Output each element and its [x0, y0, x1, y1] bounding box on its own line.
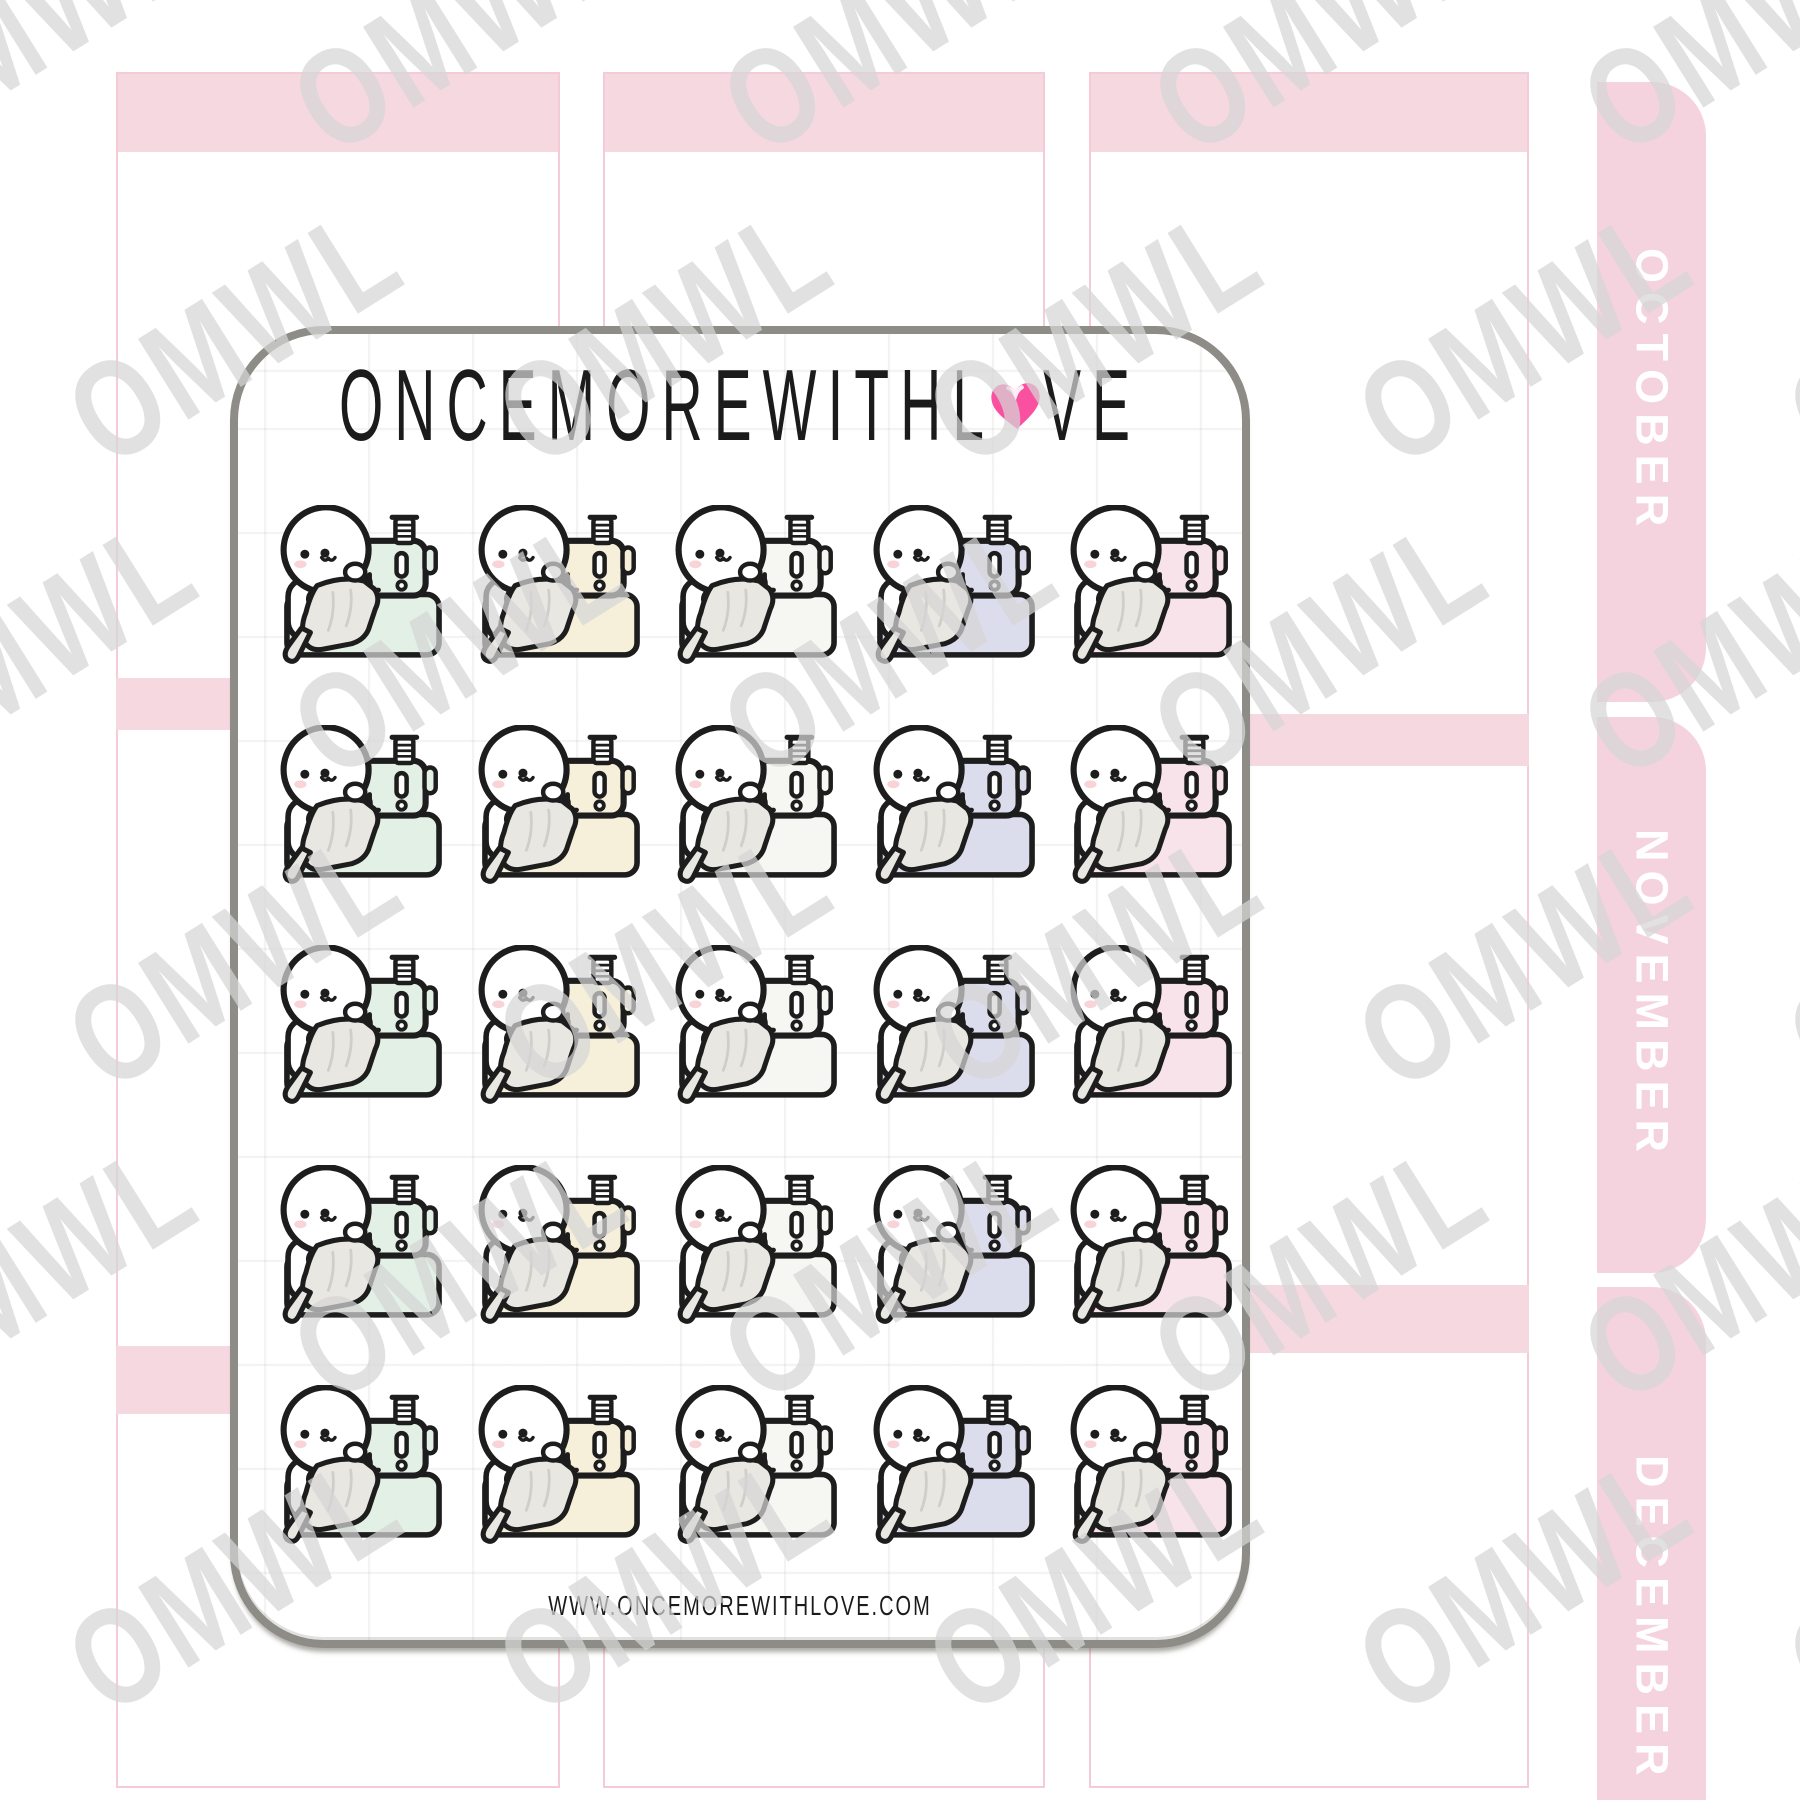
sticker-cream-sewing-machine [476, 945, 646, 1115]
brand-logo: ONCEMOREWITHL VE [238, 352, 1242, 460]
product-image: OCTOBER NOVEMBER DECEMBER ONCEMOREWITHL … [0, 0, 1800, 1800]
sticker-row [278, 945, 1238, 1115]
sticker-pink-sewing-machine [1068, 945, 1238, 1115]
tab-october-label: OCTOBER [1626, 248, 1678, 535]
sticker-cream-sewing-machine [476, 725, 646, 895]
tab-december: DECEMBER [1597, 1287, 1706, 1800]
sticker-lavender-sewing-machine [871, 505, 1041, 675]
heart-icon [985, 362, 1047, 451]
sticker-row [278, 725, 1238, 895]
tab-november: NOVEMBER [1597, 717, 1706, 1273]
sticker-white-sewing-machine [673, 725, 843, 895]
sticker-sheet: ONCEMOREWITHL VE WWW.ONCEMOREWITHLOVE.CO… [230, 326, 1250, 1648]
sticker-pink-sewing-machine [1068, 505, 1238, 675]
sticker-row [278, 1165, 1238, 1335]
sticker-mint-sewing-machine [278, 725, 448, 895]
sticker-mint-sewing-machine [278, 505, 448, 675]
watermark-text: OMWL [1760, 1420, 1800, 1745]
sticker-row [278, 1385, 1238, 1555]
sticker-cream-sewing-machine [476, 1385, 646, 1555]
watermark-text: OMWL [1760, 796, 1800, 1121]
sticker-grid [278, 505, 1238, 1555]
tab-october: OCTOBER [1597, 82, 1706, 702]
sticker-pink-sewing-machine [1068, 1165, 1238, 1335]
sticker-pink-sewing-machine [1068, 1385, 1238, 1555]
sticker-lavender-sewing-machine [871, 725, 1041, 895]
planner-column-header [118, 74, 558, 152]
sticker-lavender-sewing-machine [871, 945, 1041, 1115]
planner-column-header [605, 74, 1043, 152]
sticker-mint-sewing-machine [278, 945, 448, 1115]
sticker-lavender-sewing-machine [871, 1165, 1041, 1335]
sticker-lavender-sewing-machine [871, 1385, 1041, 1555]
sticker-mint-sewing-machine [278, 1165, 448, 1335]
sticker-cream-sewing-machine [476, 505, 646, 675]
sticker-white-sewing-machine [673, 505, 843, 675]
tab-december-label: DECEMBER [1626, 1455, 1678, 1785]
planner-column-header [1091, 74, 1527, 152]
brand-text-left: ONCEMOREWITHL [339, 347, 995, 464]
sticker-cream-sewing-machine [476, 1165, 646, 1335]
watermark-text: OMWL [1760, 172, 1800, 497]
brand-text-right: VE [1043, 347, 1141, 464]
sticker-mint-sewing-machine [278, 1385, 448, 1555]
sticker-white-sewing-machine [673, 1385, 843, 1555]
website-url: WWW.ONCEMOREWITHLOVE.COM [238, 1591, 1242, 1623]
sticker-row [278, 505, 1238, 675]
sticker-white-sewing-machine [673, 945, 843, 1115]
sticker-pink-sewing-machine [1068, 725, 1238, 895]
tab-november-label: NOVEMBER [1626, 829, 1678, 1161]
sticker-white-sewing-machine [673, 1165, 843, 1335]
